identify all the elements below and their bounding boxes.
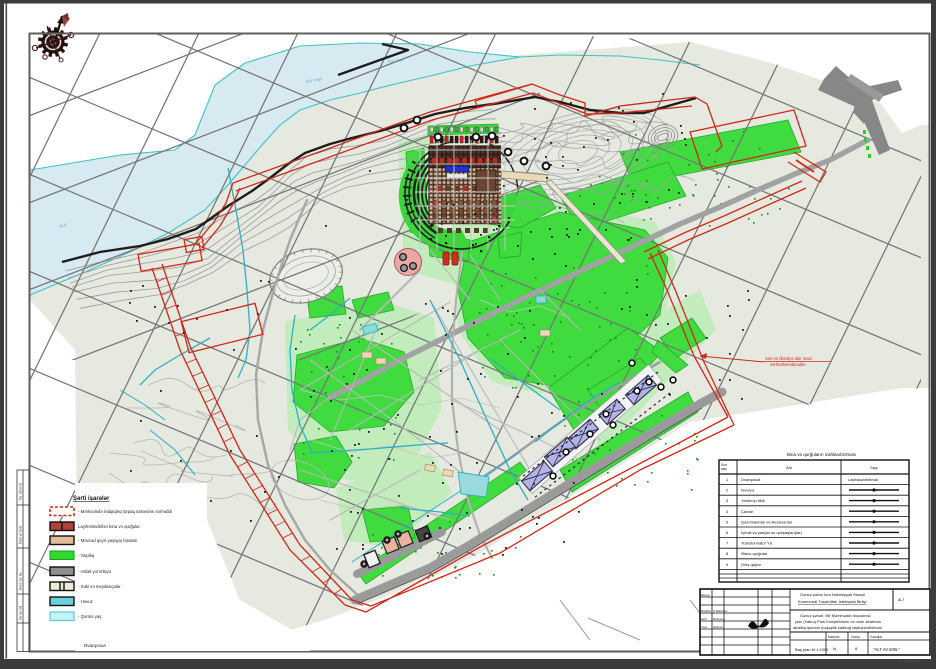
svg-text:Vərəqlər: Vərəqlər	[870, 635, 883, 639]
svg-text:A1 500x420: A1 500x420	[898, 658, 920, 663]
svg-text:Layihələndirilməsi: Layihələndirilməsi	[848, 478, 878, 482]
svg-text:Kommunal Təsərrüfatı İstehsala: Kommunal Təsərrüfatı İstehsalat Birliyi	[798, 599, 867, 604]
svg-text:sərhədlərinddouble: sərhədlərinddouble	[770, 362, 806, 367]
svg-text:Rzayeva: Rzayeva	[713, 617, 725, 621]
svg-text:Rəhbər: Rəhbər	[701, 609, 711, 613]
svg-text:Mərhələ: Mərhələ	[828, 635, 840, 639]
svg-text:fəvvarə: fəvvarə	[741, 488, 755, 493]
svg-text:"ALT AV 500L": "ALT AV 500L"	[873, 647, 900, 652]
svg-text:- Mövcud qeyri-yaşayış binala: - Mövcud qeyri-yaşayış binaları	[78, 538, 137, 543]
svg-text:- Yaşıllıq: - Yaşıllıq	[78, 553, 95, 558]
svg-text:Əlavə qurğular: Əlavə qurğular	[741, 551, 768, 556]
svg-text:Giriş qapısı: Giriş qapısı	[741, 562, 761, 567]
svg-text:Alberya: Alberya	[700, 593, 710, 597]
svg-text:İçməli və yanğın su qovşaqları: İçməli və yanğın su qovşaqları(lar)	[741, 530, 803, 535]
svg-text:ALP: ALP	[701, 617, 707, 621]
svg-text:- Qəmtə yaş: - Qəmtə yaş	[78, 614, 101, 619]
svg-text:Yoxl.: Yoxl.	[701, 625, 708, 629]
svg-text:Çarxar: Çarxar	[741, 509, 754, 514]
svg-text:- Hovuz: - Hovuz	[78, 599, 93, 604]
svg-text:Gəncə şəhər İcra Hakimiyyəti M: Gəncə şəhər İcra Hakimiyyəti Mənzil	[800, 592, 865, 597]
svg-text:Gəncə şəhəri, Mir Məmmədov küç: Gəncə şəhəri, Mir Məmmədov küçəsində	[800, 613, 871, 618]
svg-text:- Asfalt yol örtüyü: - Asfalt yol örtüyü	[78, 569, 112, 574]
svg-text:- Mərkəzində tədqiqinq torpaq: - Mərkəzində tədqiqinq torpaq sahəsinin …	[78, 509, 172, 514]
svg-text:Yardımçı tikili: Yardımçı tikili	[741, 498, 765, 503]
svg-text:Dvarqosua: Dvarqosua	[84, 643, 106, 648]
svg-text:abadlıq işlərinin (bəşəplik sa: abadlıq işlərinin (bəşəplik salkinq) lay…	[793, 625, 882, 630]
svg-text:Sayı: Sayı	[870, 465, 878, 470]
svg-text:Şərti işarələr: Şərti işarələr	[73, 496, 110, 502]
svg-text:Transformator YS: Transformator YS	[741, 541, 773, 546]
svg-text:Bina və qurğuların izahlandırı: Bina və qurğuların izahlandırılması	[787, 452, 856, 457]
svg-text:İş: İş	[833, 646, 836, 651]
svg-text:Vərəq: Vərəq	[851, 635, 860, 639]
svg-text:Quliyev: Quliyev	[713, 625, 724, 629]
svg-text:Əvəz inv. №: Əvəz inv. №	[19, 572, 23, 590]
svg-text:Sərt və tikintiyə dair ərazi: Sərt və tikintiyə dair ərazi	[765, 356, 812, 361]
svg-text:İnv. nömrəsi: İnv. nömrəsi	[18, 483, 23, 500]
svg-text:Adı: Adı	[786, 465, 792, 470]
svg-text:İnv № əsli: İnv № əsli	[18, 605, 23, 620]
svg-text:İmza və tarix: İmza və tarix	[18, 526, 23, 544]
svg-text:- Səki və meydançalar: - Səki və meydançalar	[78, 584, 121, 589]
svg-text:yeni (Xatirə) Park Kompleksini: yeni (Xatirə) Park Kompleksinin və onun …	[795, 619, 881, 624]
svg-text:S.Rəhimov: S.Rəhimov	[713, 609, 728, 613]
svg-text:Baş plan M 1:1000: Baş plan M 1:1000	[795, 647, 829, 652]
svg-text:ALT: ALT	[898, 598, 905, 602]
svg-text:Layihələndirilən bina və qurğu: Layihələndirilən bina və qurğular	[78, 524, 140, 529]
svg-text:sayı: sayı	[721, 467, 727, 471]
svg-text:Dvarqosua: Dvarqosua	[741, 477, 761, 482]
svg-text:Qazıntıantılar və Restoranlar: Qazıntıantılar və Restoranlar	[741, 519, 793, 524]
